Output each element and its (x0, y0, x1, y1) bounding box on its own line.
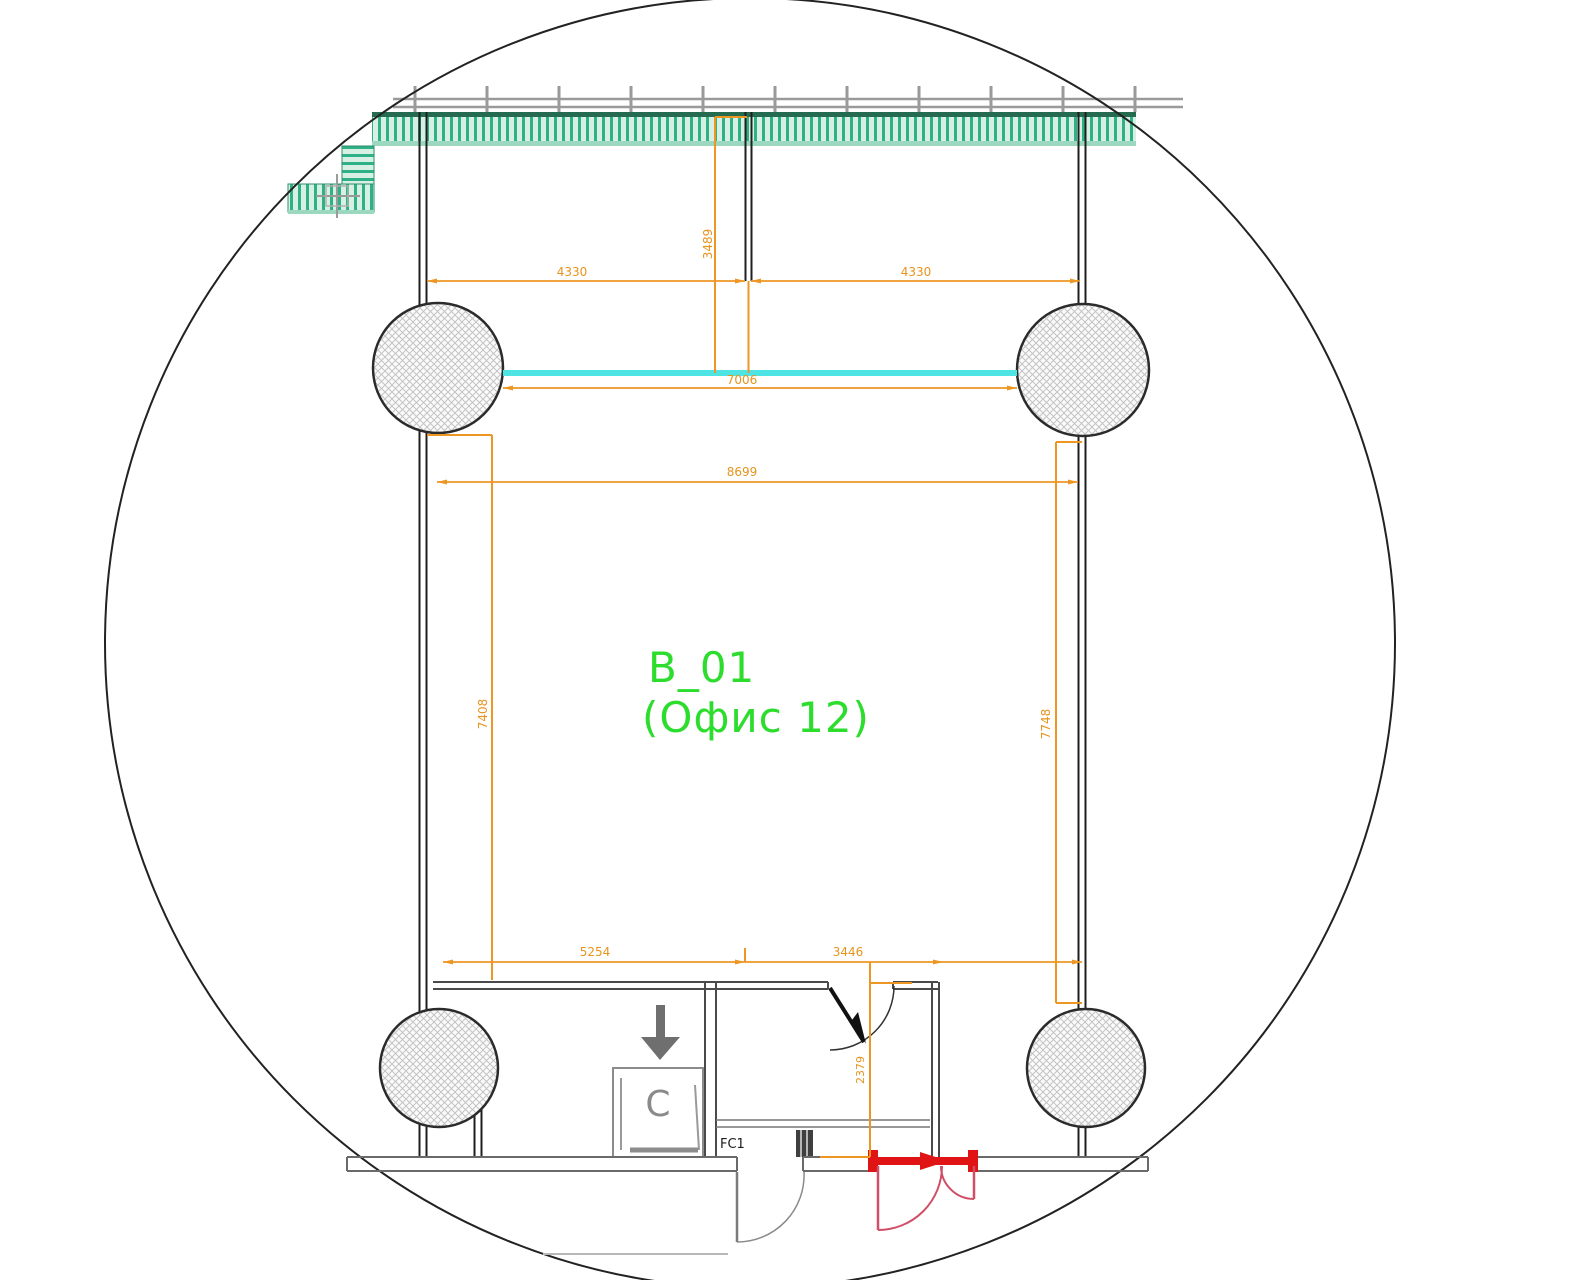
dimension-lines (427, 117, 1082, 1157)
dim-text-4330-left: 4330 (557, 265, 588, 279)
baseline-wall (347, 1157, 1148, 1171)
dim-text-3489: 3489 (701, 229, 715, 260)
column-bottom-right (1027, 1009, 1145, 1127)
green-wall-top-edge (372, 112, 1136, 117)
column-top-right (1017, 304, 1149, 436)
label-fc1: FC1 (720, 1137, 745, 1152)
down-arrow-shaft (656, 1005, 665, 1039)
dim-text-7748: 7748 (1039, 709, 1053, 740)
glazing-cyan-line (503, 370, 1017, 376)
down-arrow-head (641, 1037, 680, 1060)
door-swing-gray (543, 1172, 804, 1254)
dim-text-7408: 7408 (476, 699, 490, 730)
floor-plan-canvas: FC1 C (0, 0, 1595, 1280)
dimension-texts: 4330 4330 3489 7006 8699 7408 7748 5254 … (476, 229, 1053, 1084)
vestibule-partition (705, 982, 716, 1157)
dim-text-7006: 7006 (727, 373, 758, 387)
room-label-line1: B_01 (648, 643, 755, 692)
vestibule-right-wall (932, 982, 939, 1157)
column-top-left (373, 303, 503, 433)
curtain-grid-band (393, 86, 1183, 112)
door-red-arc-left (878, 1166, 942, 1230)
green-wall-bottom-edge (372, 141, 1136, 146)
door-gray-arc (737, 1172, 804, 1242)
dim-extension-lines (427, 117, 1082, 1157)
column-bottom-left (380, 1009, 498, 1127)
dim-text-8699: 8699 (727, 465, 758, 479)
door-interior-black (830, 986, 894, 1050)
cabinet-c-label: C (645, 1084, 670, 1125)
wall-right (1079, 112, 1086, 1157)
wall-left (420, 112, 427, 1157)
door-red-arrow (920, 1152, 948, 1170)
green-wall-step-horizontal (288, 184, 374, 212)
dim-text-4330-right: 4330 (901, 265, 932, 279)
room-label: B_01 (Офис 12) (642, 643, 870, 742)
dim-text-2379: 2379 (854, 1056, 867, 1084)
cabinet-c: C (613, 1068, 703, 1157)
vestibule-counter-line (716, 1120, 930, 1127)
floor-convector-block (796, 1130, 813, 1157)
door-red-double (868, 1150, 978, 1230)
green-wall-band (372, 112, 1136, 146)
dim-text-5254: 5254 (580, 945, 611, 959)
vestibule-top-wall (433, 982, 938, 989)
dim-text-3446: 3446 (833, 945, 864, 959)
room-label-line2: (Офис 12) (642, 693, 870, 742)
door-interior-leaf (830, 988, 864, 1042)
green-wall-step-bottom-edge (288, 210, 374, 214)
down-arrow-icon (641, 1005, 680, 1060)
curtain-wall-green (288, 112, 1136, 218)
floor-plan-viewport: FC1 C (0, 0, 1595, 1280)
